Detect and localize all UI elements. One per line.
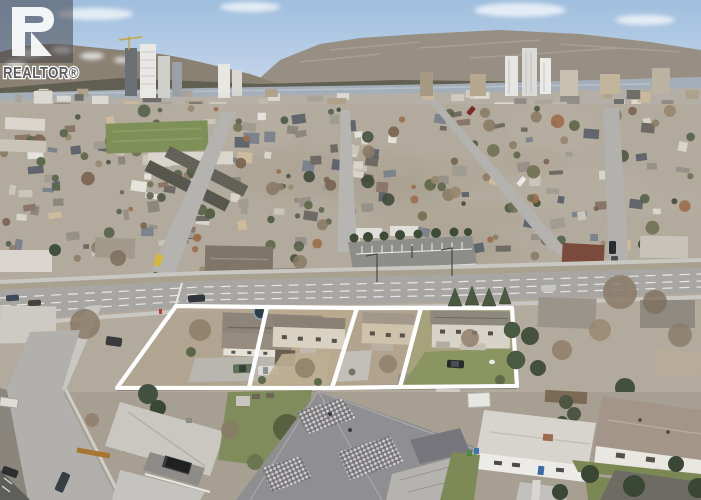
tree — [461, 201, 466, 206]
tree — [106, 160, 111, 165]
tree — [52, 175, 59, 182]
tree — [399, 117, 405, 123]
tree — [312, 239, 322, 249]
cloud — [474, 3, 566, 17]
tree — [328, 109, 334, 115]
white-canopy — [468, 392, 491, 407]
car-on-road — [28, 300, 41, 307]
tower — [420, 72, 433, 96]
house — [565, 151, 573, 157]
tree — [628, 107, 637, 116]
window — [488, 331, 493, 335]
tower — [172, 62, 182, 96]
city-building — [627, 90, 641, 99]
tree — [104, 227, 115, 238]
house — [361, 203, 373, 212]
roof-vent — [348, 428, 352, 432]
hedge — [567, 407, 581, 421]
tree — [288, 185, 293, 190]
tree — [679, 200, 691, 212]
tree — [686, 133, 695, 142]
tree — [451, 158, 458, 165]
city-building — [308, 95, 324, 101]
tree — [544, 159, 550, 165]
house — [546, 188, 559, 194]
apartment-block — [5, 117, 46, 131]
tree — [551, 115, 565, 129]
bare-tree — [189, 319, 211, 341]
tree — [418, 211, 428, 221]
garden-box — [266, 393, 274, 398]
bare-tree — [221, 421, 239, 439]
tree — [317, 219, 328, 230]
evergreen-tree — [668, 456, 684, 472]
rv-trailer — [0, 397, 18, 408]
house — [577, 211, 586, 221]
house — [353, 161, 363, 169]
neighbor-roof — [537, 297, 596, 329]
city-building — [328, 98, 347, 105]
tree — [192, 246, 198, 252]
tree — [493, 234, 498, 239]
window — [231, 351, 235, 354]
tree — [569, 120, 580, 131]
tree — [431, 176, 439, 184]
evergreen-tree — [623, 475, 645, 497]
house — [330, 144, 338, 153]
tree — [53, 184, 60, 191]
bare-tree — [110, 250, 126, 266]
window — [247, 351, 251, 354]
house — [452, 165, 467, 176]
patio-stones — [236, 396, 250, 406]
tree — [365, 133, 373, 141]
tree — [36, 157, 45, 166]
house — [599, 171, 605, 180]
tree — [363, 145, 376, 158]
house — [583, 128, 599, 139]
fire-hydrant — [159, 309, 162, 314]
city-building — [685, 90, 699, 99]
house — [274, 208, 285, 214]
roof-vent — [638, 418, 642, 422]
house — [144, 173, 152, 179]
tree — [158, 108, 163, 113]
texture-blotch — [370, 203, 528, 230]
tree — [671, 198, 677, 204]
road-front-house — [0, 250, 52, 272]
window — [370, 331, 375, 335]
back-stairs — [436, 341, 450, 348]
window — [440, 329, 445, 333]
house — [557, 196, 564, 204]
tree — [410, 196, 418, 204]
bare-tree — [589, 319, 611, 341]
window — [400, 333, 405, 337]
house — [147, 200, 160, 212]
blue-bin — [474, 448, 479, 454]
tree — [304, 171, 315, 182]
cloud — [615, 15, 675, 25]
window — [263, 352, 267, 355]
tree — [450, 187, 461, 198]
house — [264, 132, 275, 143]
tree — [147, 181, 153, 187]
evergreen-tree — [581, 465, 599, 483]
tower — [232, 70, 242, 96]
tree — [531, 112, 542, 123]
window — [332, 339, 337, 343]
road-front-house — [205, 245, 273, 272]
evergreen-tree — [530, 360, 546, 376]
tree — [664, 105, 676, 117]
house — [16, 214, 26, 221]
tree — [138, 105, 151, 118]
roof-vent — [666, 430, 670, 434]
house — [287, 125, 299, 134]
aerial-photo: REALTOR® — [0, 0, 701, 500]
tree — [233, 123, 242, 132]
bare-tree — [295, 358, 315, 378]
house-roof — [362, 312, 414, 325]
tree — [81, 172, 95, 186]
house — [83, 244, 89, 249]
bare-tree — [293, 255, 307, 269]
tree — [319, 207, 325, 213]
house — [291, 113, 306, 124]
house — [462, 192, 469, 197]
brick-chimney — [543, 434, 554, 442]
house — [440, 126, 447, 131]
tree — [509, 141, 517, 149]
house — [238, 199, 249, 209]
tower — [470, 74, 486, 96]
car-on-road — [6, 295, 19, 302]
chimney — [186, 418, 192, 423]
window — [456, 330, 461, 334]
city-building — [16, 95, 22, 103]
tree — [527, 194, 535, 202]
house — [258, 113, 266, 121]
tree — [646, 221, 660, 235]
window — [298, 337, 303, 341]
apartment-block — [0, 139, 46, 153]
tree — [116, 209, 122, 215]
tree — [95, 160, 102, 167]
garden-box — [252, 394, 260, 399]
realtor-wordmark: REALTOR® — [3, 65, 79, 82]
tree — [2, 218, 10, 226]
tree — [281, 116, 289, 124]
house — [53, 198, 64, 206]
bare-tree — [85, 413, 99, 427]
yard-debris — [349, 369, 356, 376]
green-bin — [467, 450, 472, 456]
ridge-line — [210, 258, 268, 259]
tree — [560, 136, 568, 144]
bush — [314, 378, 322, 386]
tree — [513, 151, 520, 158]
house — [237, 220, 247, 231]
lot-2-house — [273, 316, 346, 349]
parked-car — [609, 241, 616, 254]
back-deck — [371, 343, 393, 351]
tree — [140, 222, 147, 229]
window — [556, 468, 564, 473]
tree — [295, 213, 300, 218]
window — [512, 463, 520, 468]
tree — [487, 144, 500, 157]
neighbor-roof — [654, 349, 701, 377]
tower — [652, 68, 670, 94]
house — [66, 231, 80, 241]
tree — [304, 201, 313, 210]
tree — [687, 173, 693, 179]
evergreen-tree — [507, 351, 525, 369]
white-dog — [489, 360, 495, 364]
house — [496, 246, 511, 252]
house — [647, 163, 657, 170]
tree — [243, 135, 250, 142]
tower — [522, 48, 537, 96]
city-building — [265, 89, 278, 97]
blue-door — [537, 466, 544, 476]
evergreen-tree — [49, 244, 61, 256]
tree — [276, 169, 281, 174]
house — [94, 141, 107, 149]
evergreen-tree — [552, 484, 568, 500]
city-building — [34, 91, 53, 104]
aerial-photo-canvas: REALTOR® — [0, 0, 701, 500]
tree — [193, 234, 201, 242]
city-building — [451, 94, 464, 101]
city-building — [57, 96, 71, 102]
bare-tree — [643, 290, 667, 314]
tower — [158, 56, 170, 98]
hedge — [559, 395, 573, 409]
tree — [337, 108, 341, 112]
car-on-road — [188, 294, 205, 302]
sports-field-group — [106, 120, 209, 154]
house — [653, 209, 661, 215]
house — [310, 156, 321, 165]
tree — [388, 126, 399, 137]
house — [118, 156, 126, 165]
tree — [146, 192, 153, 199]
bare-tree — [668, 323, 692, 347]
bare-tree — [461, 329, 479, 347]
tower — [125, 48, 137, 96]
r-stem — [12, 7, 25, 56]
tree — [594, 206, 599, 211]
tree — [483, 119, 495, 131]
tree — [81, 152, 89, 160]
tree — [266, 182, 280, 196]
house — [28, 165, 44, 174]
bare-tree-large — [603, 275, 637, 309]
tower — [560, 70, 578, 96]
bush — [258, 376, 266, 384]
tree — [267, 216, 274, 223]
tree — [60, 129, 68, 137]
house — [521, 127, 528, 131]
window — [316, 337, 321, 341]
tower — [218, 64, 230, 98]
tree — [652, 119, 659, 126]
tree — [157, 193, 166, 202]
tree — [411, 185, 416, 190]
house — [376, 182, 388, 193]
tree — [325, 180, 336, 191]
cloud — [220, 2, 280, 12]
tower — [600, 74, 620, 94]
road-front-house — [640, 236, 688, 259]
window — [494, 461, 502, 466]
tree — [437, 182, 446, 191]
bare-tree — [379, 355, 397, 373]
tree — [527, 165, 540, 178]
bare-tree — [552, 340, 572, 360]
tree — [640, 194, 650, 204]
evergreen-tree — [521, 327, 539, 345]
tree — [294, 198, 299, 203]
roof-vent — [328, 412, 332, 416]
bush — [74, 255, 81, 262]
realtor-watermark: REALTOR® — [0, 0, 79, 82]
window — [282, 335, 287, 339]
dark-car — [447, 360, 464, 369]
house — [18, 190, 32, 198]
sports-field — [106, 120, 209, 154]
tree — [286, 174, 291, 179]
tree — [487, 236, 493, 242]
tree — [235, 158, 246, 169]
tower — [540, 58, 551, 94]
house — [383, 170, 396, 178]
tree — [188, 105, 195, 112]
silver-car — [541, 285, 556, 292]
tree — [382, 193, 394, 205]
tree — [75, 114, 81, 120]
house — [590, 234, 598, 241]
house — [70, 145, 81, 155]
tree — [214, 107, 219, 112]
tree — [128, 207, 133, 212]
house — [549, 170, 563, 175]
city-building — [75, 94, 84, 101]
tower — [505, 56, 518, 96]
bush — [186, 347, 196, 357]
front-walk — [531, 480, 540, 500]
house — [330, 115, 339, 125]
bush — [495, 375, 505, 385]
tree — [120, 190, 125, 195]
tree — [480, 108, 490, 118]
house — [264, 151, 271, 158]
window — [386, 333, 391, 337]
tree — [534, 106, 540, 112]
tree — [361, 175, 374, 188]
tree — [294, 241, 304, 251]
tree — [531, 252, 540, 261]
evergreen-tree — [504, 322, 520, 338]
